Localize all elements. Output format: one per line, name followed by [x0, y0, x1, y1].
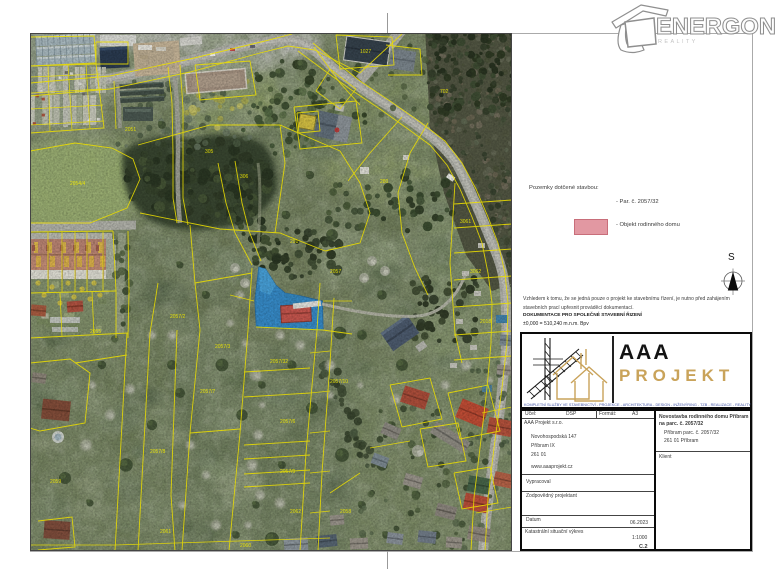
svg-text:REALITY: REALITY [658, 39, 698, 45]
svg-text:ENERGON: ENERGON [656, 13, 776, 39]
